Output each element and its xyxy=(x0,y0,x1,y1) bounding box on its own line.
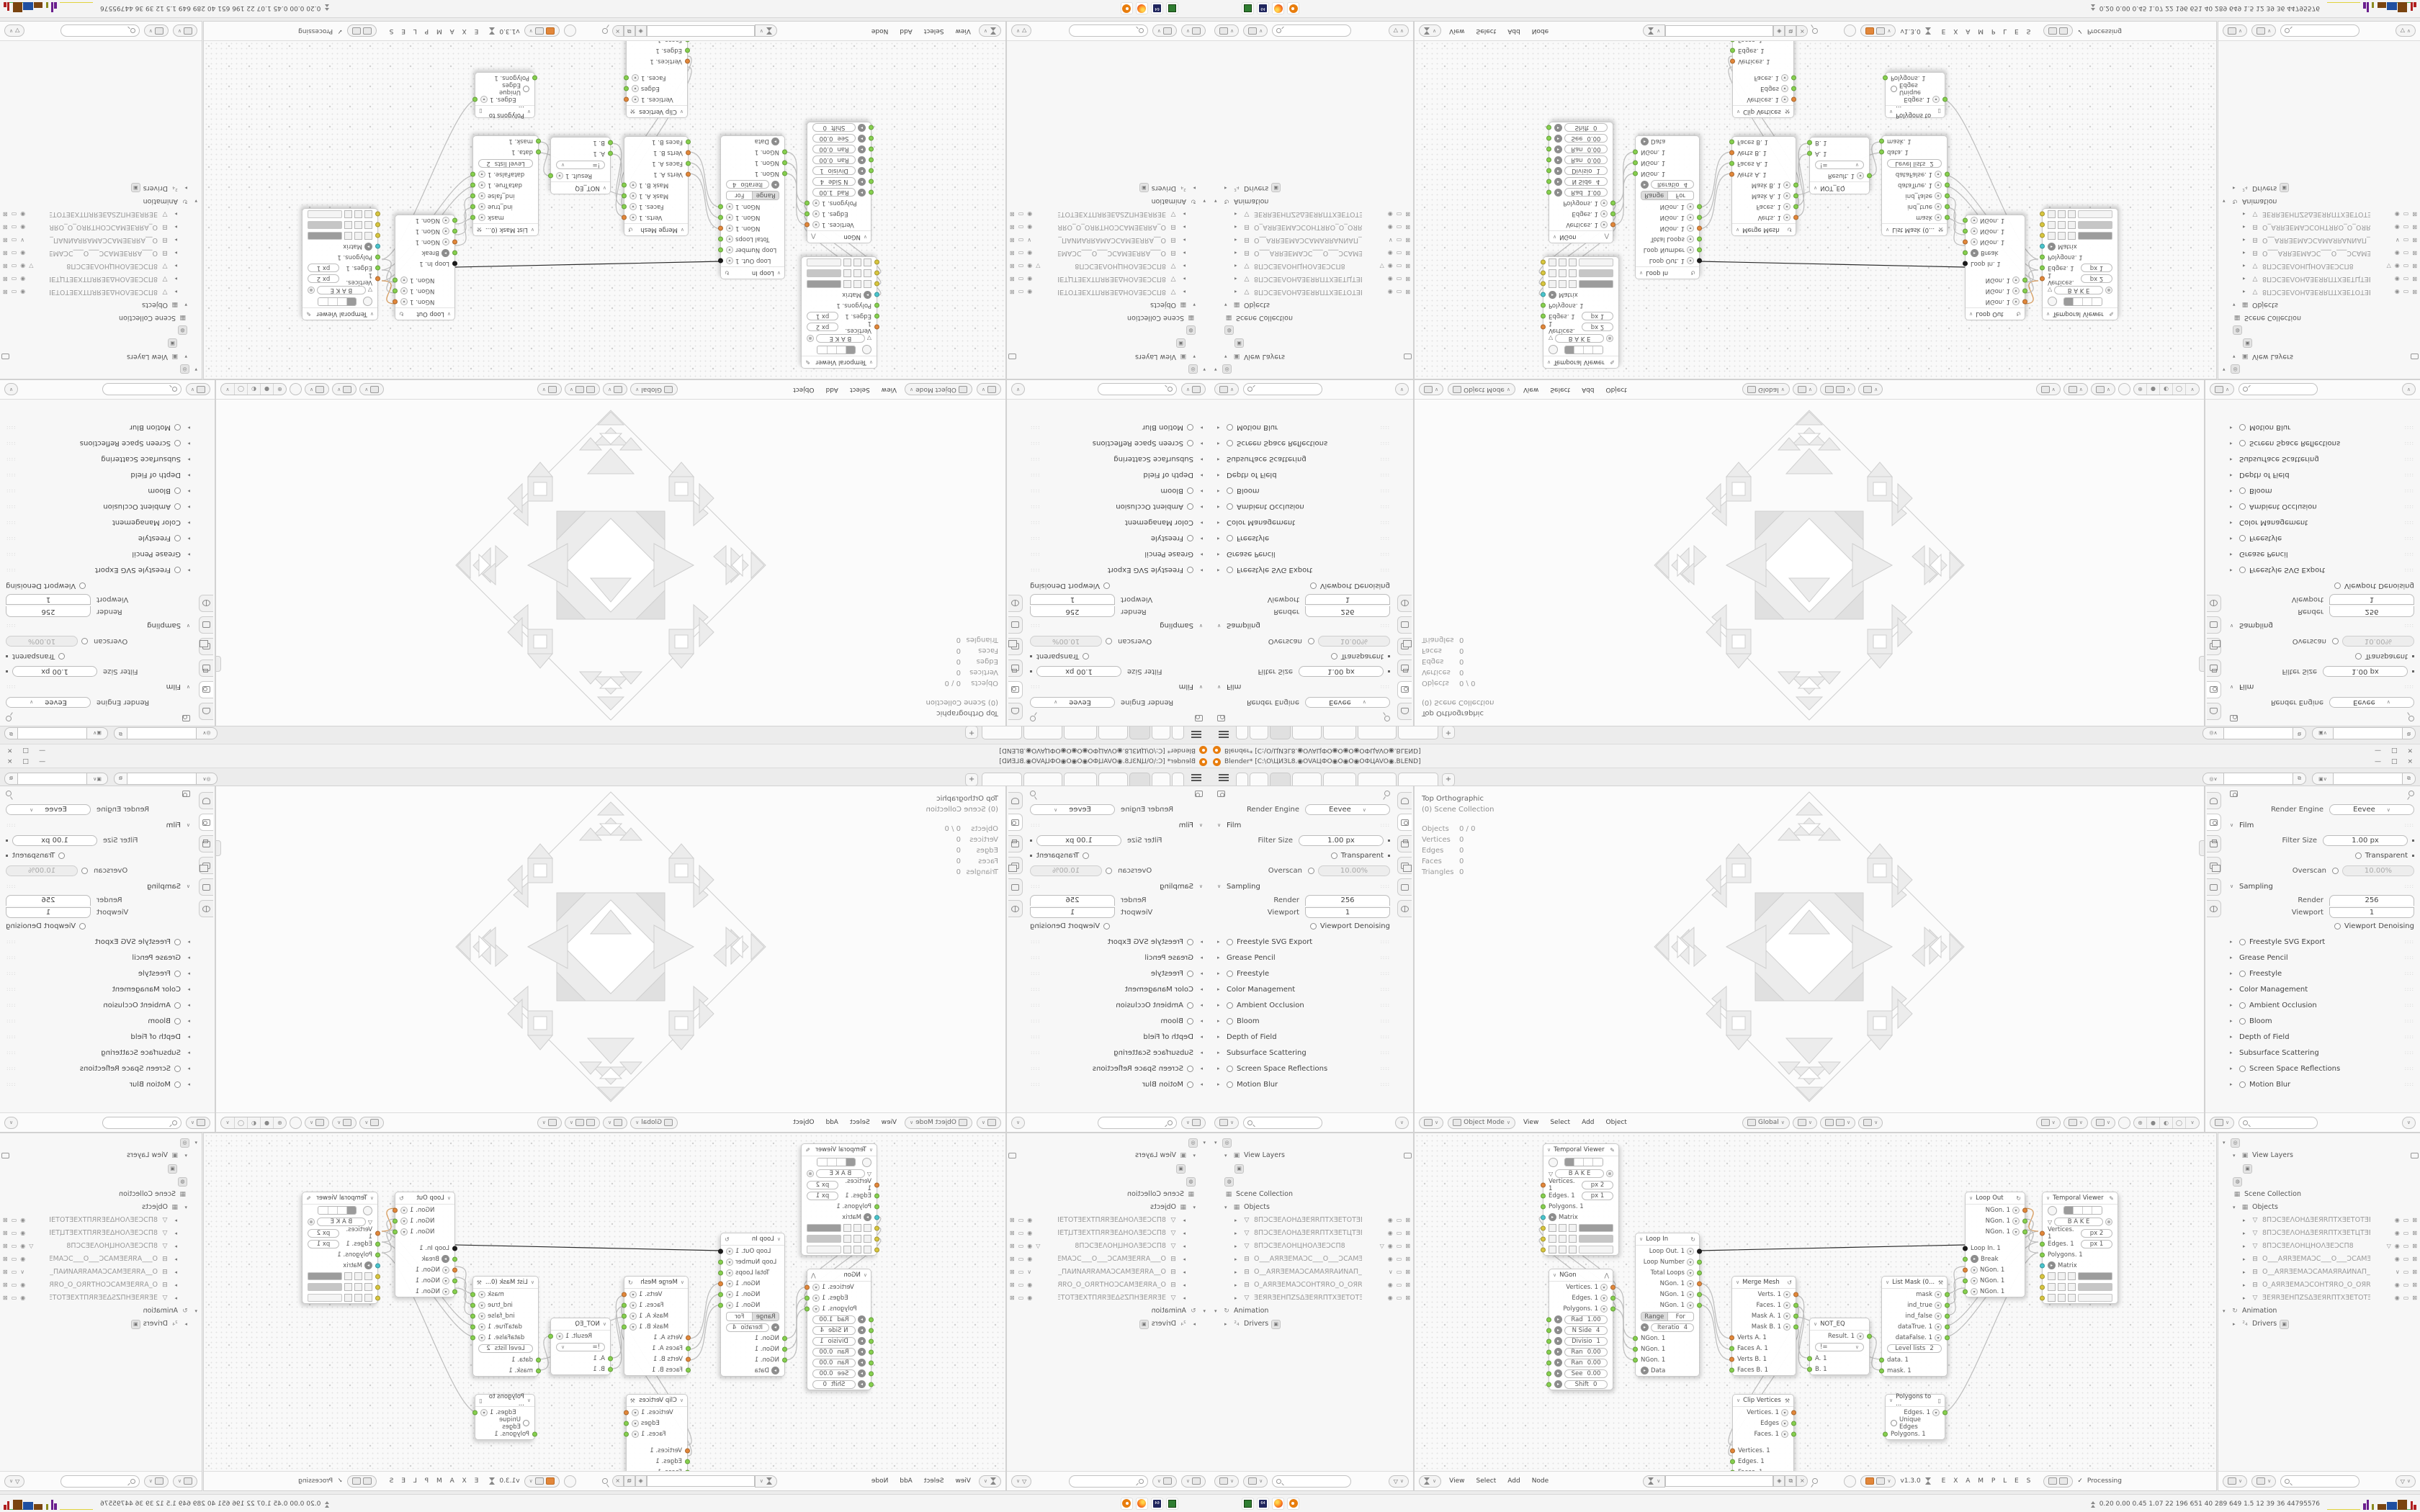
shading-material-icon[interactable]: ◐ xyxy=(247,384,260,396)
menu-object[interactable]: Object xyxy=(789,386,817,393)
modifier-icon[interactable]: ▽ xyxy=(1036,259,1040,272)
node-noteq[interactable]: ∨NOT_EQResult. 1▾!=∨A. 1B. 1 xyxy=(1809,137,1870,194)
input-socket[interactable] xyxy=(1546,1317,1551,1322)
output-socket[interactable] xyxy=(1697,258,1702,264)
node-row[interactable] xyxy=(2043,220,2117,230)
workspace-tab[interactable] xyxy=(1323,773,1356,786)
node-row[interactable]: Total Loops▾ xyxy=(721,1267,784,1278)
node-noteq[interactable]: ∨NOT_EQResult. 1▾!=∨A. 1B. 1 xyxy=(550,137,611,194)
samples-render-field[interactable]: 256 xyxy=(6,895,91,906)
taskbar-app1-icon[interactable] xyxy=(1166,1498,1178,1510)
filter-size-field[interactable]: 1.00 px xyxy=(1036,666,1121,677)
operator-dropdown[interactable]: !=∨ xyxy=(1815,161,1864,169)
show-icon[interactable] xyxy=(2048,1206,2057,1215)
input-socket[interactable] xyxy=(2040,222,2045,228)
bake-options-icon[interactable]: ⊗ xyxy=(2105,1218,2112,1225)
view-layer-selector[interactable]: ▣∨⧉ xyxy=(4,773,108,785)
value-field[interactable]: See0.00 xyxy=(1564,135,1608,143)
input-socket[interactable] xyxy=(1541,1193,1546,1198)
world-item-icon[interactable]: ◍ xyxy=(2233,1177,2242,1187)
input-socket[interactable] xyxy=(1729,1335,1734,1340)
viewport-3d[interactable]: Top Orthographic (0) Scene Collection Ob… xyxy=(216,380,1005,726)
filter-size-field[interactable]: 1.00 px xyxy=(1299,835,1384,846)
tab-scene[interactable] xyxy=(1397,616,1412,634)
input-socket[interactable] xyxy=(1879,1357,1884,1362)
display-options-icons[interactable] xyxy=(817,346,856,354)
node-row[interactable] xyxy=(1543,1233,1618,1244)
scene-copy-icon[interactable]: ⧉ xyxy=(2293,727,2306,739)
input-socket[interactable] xyxy=(1546,168,1551,174)
node-row[interactable]: Faces B. 1 xyxy=(1732,1364,1796,1375)
outliner-object-row[interactable]: ▸⊟O__AЯRƎEMAƆCAMAЯRAИNAП_C∨▭⊠ xyxy=(1,233,197,246)
node-row[interactable]: Vertices. 1▾ xyxy=(1549,220,1613,230)
color-swatch[interactable] xyxy=(2078,232,2112,240)
value-field[interactable]: N Side4 xyxy=(812,178,856,186)
node-row[interactable]: Edges. 1px 1 xyxy=(1543,1190,1618,1201)
processing-check-icon[interactable]: ✓ xyxy=(2077,1477,2083,1485)
workspace-tab[interactable] xyxy=(982,773,1022,786)
gizmo-dropdown[interactable]: ∨ xyxy=(2063,1117,2088,1129)
minimize-button[interactable]: — xyxy=(39,747,45,754)
outliner-object-row[interactable]: ▸▽8ПƆCƎEΛOHЦHOΛƎEƆCП8▽◉▭⊠ xyxy=(2223,259,2419,272)
view-layer-item-icon[interactable]: ▣ xyxy=(1234,339,1244,348)
snap-dropdown[interactable]: ∨ xyxy=(1860,1475,1896,1488)
outliner-row-objects[interactable]: ▾▦Objects xyxy=(1,1201,197,1214)
input-socket[interactable] xyxy=(874,1193,879,1198)
show-icon[interactable] xyxy=(862,1158,871,1167)
section-sampling[interactable]: ∨Sampling:::: xyxy=(1030,618,1203,634)
tab-output[interactable] xyxy=(2207,835,2221,852)
value-field[interactable]: See0.00 xyxy=(1564,1369,1608,1378)
outliner-row-drivers[interactable]: ▸²₄Drivers▣ xyxy=(1,1318,197,1331)
filter-mode-dropdown[interactable]: ∨ xyxy=(2251,25,2276,37)
node-row[interactable]: Unique Edges xyxy=(1886,1418,1945,1428)
input-socket[interactable] xyxy=(1633,1357,1638,1362)
node-row[interactable]: ▸Data xyxy=(1636,136,1699,147)
node-row[interactable]: data. 1 xyxy=(1882,147,1947,158)
node-noteq[interactable]: ∨NOT_EQResult. 1▾!=∨A. 1B. 1 xyxy=(1809,1318,1870,1375)
tab-tool[interactable] xyxy=(1008,792,1023,809)
disable-viewport-icon[interactable]: ▭ xyxy=(1018,1214,1024,1227)
output-socket[interactable] xyxy=(1945,1313,1950,1318)
output-socket[interactable] xyxy=(548,174,553,179)
color-swatch[interactable] xyxy=(807,1235,841,1243)
view-layer-item-icon[interactable]: ▣ xyxy=(2243,339,2252,348)
samples-viewport-field[interactable]: 1 xyxy=(1305,594,1390,605)
workspace-tab[interactable] xyxy=(1358,726,1397,739)
node-tv1[interactable]: ∨Temporal Viewer✎▽B A K E⊗Vertices. 1px … xyxy=(801,256,877,369)
outliner-object-row[interactable]: ▸▽ƎEЯRƎEHПZSΔƎEЯRПTXƎETOTƎE◉▭⊠ xyxy=(1,207,197,220)
shading-options-icon[interactable]: ∨ xyxy=(2186,1117,2199,1129)
display-options-icons[interactable] xyxy=(2063,1206,2102,1215)
output-socket[interactable] xyxy=(1942,1410,1948,1415)
node-row[interactable]: Faces B. 1 xyxy=(624,137,688,148)
snap-dropdown[interactable]: ∨ xyxy=(1860,25,1896,37)
output-socket[interactable] xyxy=(393,289,398,294)
node-row[interactable]: Vertices. 1▾ xyxy=(627,1407,687,1418)
samples-render-field[interactable]: 256 xyxy=(1030,606,1115,617)
color-swatch[interactable] xyxy=(308,1283,342,1291)
orientation-dropdown[interactable]: Global∨ xyxy=(630,384,678,396)
node-row[interactable]: ▾NGon. 1 xyxy=(395,1286,454,1297)
level-lists-field[interactable]: Level lists2 xyxy=(478,159,533,168)
node-row[interactable]: NGon. 1 xyxy=(1636,147,1699,158)
node-ngon[interactable]: ∨NGon⋀Vertices. 1▾Edges. 1▾Polygons. 1▾▸… xyxy=(807,1269,871,1390)
menu-node[interactable]: Node xyxy=(1528,27,1553,35)
render-engine-dropdown[interactable]: Eevee∨ xyxy=(1305,697,1390,708)
menu-add[interactable]: Add xyxy=(1578,1119,1597,1126)
input-socket[interactable] xyxy=(1879,150,1884,155)
outliner-object-row[interactable]: ▸⊟O__AЯRƎEMAƆCAMAЯRAИNAП_C∨▭⊠ xyxy=(1214,233,1412,246)
node-row[interactable]: Edges. 1 xyxy=(627,1456,687,1467)
node-row[interactable] xyxy=(302,296,377,307)
px-field[interactable]: px 2 xyxy=(807,1181,838,1189)
operator-dropdown[interactable]: !=∨ xyxy=(556,161,605,169)
node-row[interactable]: Loop Number▾ xyxy=(721,245,784,256)
bake-button[interactable]: B A K E xyxy=(816,334,865,343)
node-row[interactable]: NGon. 1▾ xyxy=(1966,1215,2025,1226)
node-row[interactable]: Polygons. 1 xyxy=(1886,1428,1945,1439)
node-row[interactable] xyxy=(302,1205,377,1216)
input-socket[interactable] xyxy=(536,150,541,155)
node-row[interactable]: ▸Shift0 xyxy=(807,1379,871,1390)
node-row[interactable]: Edges. 1 xyxy=(1733,1456,1793,1467)
node-row[interactable]: ▸Rad1.00 xyxy=(807,187,871,198)
outliner-object-row[interactable]: ▸▽8ПƆCƎEΛOHЦHOΛƎEƆCП8▽◉▭⊠ xyxy=(1214,1240,1412,1253)
input-socket[interactable] xyxy=(452,240,457,245)
output-socket[interactable] xyxy=(470,172,475,177)
node-header[interactable]: ∨Temporal Viewer✎ xyxy=(302,307,377,320)
samples-render-field[interactable]: 256 xyxy=(1305,606,1390,617)
input-socket[interactable] xyxy=(452,1289,457,1294)
value-field[interactable]: Shift0 xyxy=(1564,124,1608,132)
node-row[interactable]: Loop Out. 1▾ xyxy=(721,1246,784,1256)
node-row[interactable]: ▸Divisio1 xyxy=(807,166,871,176)
output-socket[interactable] xyxy=(1791,86,1796,91)
output-socket[interactable] xyxy=(470,1324,475,1329)
disable-render-icon[interactable]: ⊠ xyxy=(1405,285,1410,298)
outliner-row-animation[interactable]: ▾↻Animation xyxy=(1,194,197,207)
input-socket[interactable] xyxy=(686,1346,691,1351)
node-row[interactable]: ▸Matrix xyxy=(1543,1212,1618,1223)
input-socket[interactable] xyxy=(2040,1241,2045,1246)
properties-options-dropdown[interactable]: ∨ xyxy=(2402,384,2416,396)
node-row[interactable]: !=∨ xyxy=(551,159,610,171)
overscan-checkbox[interactable] xyxy=(1308,638,1314,644)
input-socket[interactable] xyxy=(2040,1230,2045,1236)
output-socket[interactable] xyxy=(718,204,723,210)
output-socket[interactable] xyxy=(470,204,475,210)
outliner-object-row[interactable]: ▸⊟O__AЯRƎEMAƆCAMAЯRAИNAП_C∨▭⊠ xyxy=(1008,1266,1206,1279)
pin-icon[interactable] xyxy=(601,1477,609,1485)
node-merge[interactable]: ∨Merge Mesh↺Verts. 1▾Faces. 1▾Mask A. 1▾… xyxy=(624,136,689,236)
node-row[interactable]: Result. 1▾ xyxy=(1810,171,1869,181)
outliner-row-view-layers[interactable]: ▾▣View Layers xyxy=(2223,350,2419,363)
output-socket[interactable] xyxy=(718,1281,723,1286)
section-collapsed[interactable]: ▸Freestyle SVG Export:::: xyxy=(1030,562,1203,578)
output-socket[interactable] xyxy=(624,1421,629,1426)
workspace-tab[interactable] xyxy=(1250,726,1268,739)
proportional-edit-dropdown[interactable]: ∨ xyxy=(1858,1117,1883,1129)
menu-object[interactable]: Object xyxy=(789,1119,817,1126)
node-editor[interactable]: ∨Temporal Viewer✎▽B A K E⊗Vertices. 1px … xyxy=(204,22,1005,379)
node-row[interactable]: Vertices. 1px 2 xyxy=(1543,322,1618,333)
mode-dropdown[interactable]: Object Mode∨ xyxy=(1448,1117,1515,1129)
unique-edges-checkbox[interactable] xyxy=(523,1420,529,1426)
node-row[interactable]: ▸Matrix xyxy=(1543,289,1618,300)
input-socket[interactable] xyxy=(1546,1349,1551,1354)
node-row[interactable]: NGon. 1▾ xyxy=(1636,223,1699,234)
node-row[interactable]: mask. 1 xyxy=(1882,1365,1947,1376)
value-field[interactable]: N Side4 xyxy=(812,1326,856,1335)
node-row[interactable] xyxy=(1543,1156,1618,1168)
main-menu-icon[interactable] xyxy=(1188,771,1204,784)
node-row[interactable]: Total Loops▾ xyxy=(1636,234,1699,245)
shading-options-icon[interactable]: ∨ xyxy=(221,384,234,396)
bake-button[interactable]: B A K E xyxy=(2054,286,2103,294)
node-loopout[interactable]: ∨Loop Out↻NGon. 1▾NGon. 1▾NGon. 1▾Loop I… xyxy=(395,1192,455,1297)
input-socket[interactable] xyxy=(375,244,380,249)
node-listmask[interactable]: ∨List Mask (0...⚒mask▾ind_true▾ind_false… xyxy=(472,1276,539,1377)
snap-magnet-dropdown[interactable]: ∨ xyxy=(1820,384,1855,396)
px-field[interactable]: px 1 xyxy=(2081,1240,2112,1248)
node-row[interactable]: Verts. 1▾ xyxy=(624,212,688,223)
render-engine-dropdown[interactable]: Eevee∨ xyxy=(1305,804,1390,815)
view-layer-selector[interactable]: ▣∨⧉ xyxy=(2312,727,2416,739)
shading-solid-icon[interactable]: ● xyxy=(2147,384,2160,396)
node-row[interactable]: ▾NGon. 1 xyxy=(1966,1264,2025,1275)
workspace-tab[interactable] xyxy=(982,726,1022,739)
node-row[interactable]: mask▾ xyxy=(473,1289,538,1300)
snap-target-dropdown[interactable]: ∨ xyxy=(1793,384,1817,396)
tab-world[interactable] xyxy=(199,595,213,612)
workspace-tab[interactable] xyxy=(1023,726,1062,739)
node-row[interactable] xyxy=(802,1244,877,1255)
outliner-object-row[interactable]: ▸▽8ПƆCƎEΛOHΔƎEЯRПTXƎETЦTƎEX◉▭⊠ xyxy=(1008,1227,1206,1240)
shading-material-icon[interactable]: ◐ xyxy=(2160,1117,2173,1129)
output-socket[interactable] xyxy=(1697,1248,1702,1254)
color-swatch[interactable] xyxy=(807,1246,841,1254)
output-socket[interactable] xyxy=(1945,1302,1950,1308)
node-row[interactable] xyxy=(302,209,377,220)
input-socket[interactable] xyxy=(1730,41,1735,42)
output-socket[interactable] xyxy=(393,1207,398,1212)
bake-button[interactable]: B A K E xyxy=(1555,334,1604,343)
workspace-tab-active[interactable] xyxy=(1129,726,1150,739)
node-row[interactable]: Verts. 1▾ xyxy=(1732,212,1796,223)
node-tv2[interactable]: ∨Temporal Viewer✎▽B A K E⊗Vertices. 1px … xyxy=(302,208,378,320)
menu-select[interactable]: Select xyxy=(1472,27,1500,35)
tab-view-layer[interactable] xyxy=(1397,638,1412,655)
node-row[interactable] xyxy=(2043,1271,2117,1282)
node-row[interactable]: NGon. 1 xyxy=(721,1354,784,1365)
input-socket[interactable] xyxy=(1541,282,1546,287)
render-engine-dropdown[interactable]: Eevee∨ xyxy=(6,804,91,815)
level-lists-field[interactable]: Level lists2 xyxy=(1887,1344,1942,1353)
node-row[interactable]: ▸Data xyxy=(721,136,784,147)
output-socket[interactable] xyxy=(1697,204,1702,210)
input-socket[interactable] xyxy=(2040,266,2045,271)
node-row[interactable] xyxy=(2043,230,2117,241)
input-socket[interactable] xyxy=(1730,59,1735,64)
color-swatch[interactable] xyxy=(2078,221,2112,229)
node-row[interactable]: Vertices. 1px 2 xyxy=(802,322,877,333)
input-socket[interactable] xyxy=(869,147,874,152)
node-row[interactable]: ▸Data xyxy=(1636,1365,1699,1376)
toggle-icon[interactable]: ▸ xyxy=(1549,291,1556,299)
input-socket[interactable] xyxy=(1963,1256,1968,1261)
overscan-checkbox[interactable] xyxy=(81,638,88,644)
node-row[interactable]: ▸Shift0 xyxy=(807,122,871,133)
filter-dropdown[interactable]: ▽∨ xyxy=(2396,1475,2416,1488)
node-row[interactable]: dataTrue. 1▾ xyxy=(1882,180,1947,191)
input-socket[interactable] xyxy=(686,140,691,145)
workspace-tab[interactable] xyxy=(1172,773,1184,786)
tab-world[interactable] xyxy=(2207,900,2221,917)
menu-select[interactable]: Select xyxy=(1472,1477,1500,1485)
input-socket[interactable] xyxy=(375,233,380,238)
node-row[interactable]: Edges. 1 xyxy=(627,45,687,56)
shading-solid-icon[interactable]: ● xyxy=(260,1117,273,1129)
output-socket[interactable] xyxy=(1945,194,1950,199)
pin-icon[interactable] xyxy=(4,714,12,722)
node-tv1[interactable]: ∨Temporal Viewer✎▽B A K E⊗Vertices. 1px … xyxy=(801,1143,877,1256)
mode-segmented-control[interactable]: RangeFor Each xyxy=(1641,192,1694,201)
view-layer-filter-icon[interactable]: ◎ xyxy=(2231,365,2240,374)
mode-segmented-control[interactable]: RangeFor Each xyxy=(726,192,779,201)
output-socket[interactable] xyxy=(2022,278,2027,283)
visibility-dropdown[interactable]: ∨ xyxy=(359,1117,384,1129)
maximize-button[interactable]: □ xyxy=(23,747,30,754)
node-header[interactable]: ∨Merge Mesh↺ xyxy=(624,223,688,235)
view-layer-filter-icon[interactable]: ◎ xyxy=(1222,365,1232,374)
outliner-search-input[interactable] xyxy=(1069,25,1148,37)
outliner-object-row[interactable]: ▸⊟O_AЯRƎEMAƆCOHTЯRO_O_OЯRTH◉▭⊠ xyxy=(1214,1279,1412,1292)
color-swatch[interactable] xyxy=(1579,1246,1613,1254)
output-socket[interactable] xyxy=(470,1313,475,1318)
node-noteq[interactable]: ∨NOT_EQResult. 1▾!=∨A. 1B. 1 xyxy=(550,1318,611,1375)
menu-view[interactable]: View xyxy=(878,1119,900,1126)
node-row[interactable]: ▸Matrix xyxy=(802,289,877,300)
shading-rendered-icon[interactable]: ◯ xyxy=(2173,384,2186,396)
input-socket[interactable] xyxy=(782,161,787,166)
menu-view[interactable]: View xyxy=(1446,27,1468,35)
node-row[interactable]: Polygons. 1 xyxy=(2043,1249,2117,1260)
node-header[interactable]: ∨Temporal Viewer✎ xyxy=(2043,307,2117,320)
input-socket[interactable] xyxy=(1541,1204,1546,1209)
toggle-icon[interactable]: ▸ xyxy=(771,138,779,145)
outliner-row-animation[interactable]: ▾↻Animation xyxy=(2223,194,2419,207)
input-socket[interactable] xyxy=(2040,276,2045,282)
outliner-row-scene-collection[interactable]: ▦Scene Collection xyxy=(1,1188,197,1201)
output-socket[interactable] xyxy=(1697,1259,1702,1264)
outliner-object-row[interactable]: ▸▽ƎEЯRƎEHПZSΔƎEЯRПTXƎETOTƎE◉▭⊠ xyxy=(1,1292,197,1305)
tab-view-layer[interactable] xyxy=(199,857,213,874)
scene-selector[interactable]: ◎∨⧉ xyxy=(2202,773,2306,785)
px-field[interactable]: px 2 xyxy=(1582,323,1613,332)
input-socket[interactable] xyxy=(869,1328,874,1333)
node-row[interactable]: dataFalse. 1▾ xyxy=(473,1332,538,1343)
input-socket[interactable] xyxy=(452,251,457,256)
output-socket[interactable] xyxy=(1697,1292,1702,1297)
outliner-object-row[interactable]: ▸▽8ПƆCƎEΛOHЦHOΛƎEƆCП8▽◉▭⊠ xyxy=(2223,1240,2419,1253)
node-row[interactable] xyxy=(2043,1292,2117,1303)
node-row[interactable]: dataTrue. 1▾ xyxy=(1882,1321,1947,1332)
menu-view[interactable]: View xyxy=(1520,1119,1542,1126)
display-mode-dropdown[interactable]: ∨ xyxy=(1214,1475,1239,1488)
node-row[interactable]: ▸Rad1.00 xyxy=(807,1314,871,1325)
outliner-object-row[interactable]: ▸⊟O___AЯRƎEMAƆC___O___ƆCAMƎ◉▭⊠ xyxy=(1214,1253,1412,1266)
workspace-tab[interactable] xyxy=(1398,726,1438,739)
node-row[interactable]: Level lists2 xyxy=(473,158,538,169)
display-mode-dropdown[interactable]: ∨ xyxy=(1181,1475,1206,1488)
editor-type-dropdown[interactable]: ∨ xyxy=(1181,1117,1206,1129)
input-socket[interactable] xyxy=(874,1247,879,1252)
overlays-dropdown[interactable]: ∨ xyxy=(305,1117,329,1129)
node-row[interactable] xyxy=(302,220,377,230)
world-item-icon[interactable]: ◍ xyxy=(178,326,187,336)
node-row[interactable]: ▾NGon. 1 xyxy=(1966,237,2025,248)
node-row[interactable]: ind_false▾ xyxy=(473,1310,538,1321)
node-row[interactable]: mask. 1 xyxy=(473,1365,538,1376)
outliner-object-row[interactable]: ▸⊟O___AЯRƎEMAƆC___O___ƆCAMƎ◉▭⊠ xyxy=(1008,1253,1206,1266)
input-socket[interactable] xyxy=(452,1278,457,1283)
overscan-checkbox[interactable] xyxy=(2332,638,2339,644)
input-socket[interactable] xyxy=(536,139,541,144)
workspace-tab[interactable] xyxy=(1064,726,1097,739)
node-row[interactable]: ▾NGon. 1 xyxy=(395,215,454,226)
tab-render[interactable] xyxy=(1397,814,1412,831)
output-socket[interactable] xyxy=(718,226,723,231)
overscan-field[interactable]: 10.00% xyxy=(6,865,78,876)
node-editor[interactable]: ∨Temporal Viewer✎▽B A K E⊗Vertices. 1px … xyxy=(1415,22,2216,379)
editor-type-dropdown[interactable]: ∨ xyxy=(979,25,1001,37)
node-header[interactable]: ∨Temporal Viewer✎ xyxy=(802,1144,877,1156)
node-row[interactable]: Edges. 1px 1 xyxy=(302,1238,377,1249)
node-row[interactable]: data. 1 xyxy=(473,147,538,158)
sidebar-toggle[interactable] xyxy=(216,840,221,856)
scene-selector[interactable]: ◎∨⧉ xyxy=(2202,727,2306,739)
output-socket[interactable] xyxy=(624,1410,629,1415)
outliner-object-row[interactable]: ▸▽8ПƆCƎEΛOHЦHOΛƎEƆCП8▽◉▭⊠ xyxy=(1008,259,1206,272)
editor-type-dropdown[interactable]: ∨ xyxy=(186,384,210,396)
output-socket[interactable] xyxy=(2022,289,2027,294)
input-socket[interactable] xyxy=(869,1371,874,1376)
display-options-icons[interactable] xyxy=(817,1158,856,1166)
workspace-tab[interactable] xyxy=(1292,726,1322,739)
outliner-object-row[interactable]: ▸⊟O__AЯRƎEMAƆCAMAЯRAИNAП_C∨▭⊠ xyxy=(2223,233,2419,246)
node-tv2[interactable]: ∨Temporal Viewer✎▽B A K E⊗Vertices. 1px … xyxy=(302,1192,378,1304)
node-row[interactable]: Mask A. 1▾ xyxy=(624,191,688,202)
value-field[interactable]: Ran0.00 xyxy=(812,1359,856,1367)
taskbar-app1-icon[interactable] xyxy=(1242,1498,1254,1510)
outliner-object-row[interactable]: ▸⊟O_AЯRƎEMAƆCOHTЯRO_O_OЯRTH◉▭⊠ xyxy=(1008,220,1206,233)
px-field[interactable]: px 1 xyxy=(1582,312,1613,321)
world-item-icon[interactable]: ◍ xyxy=(1186,1177,1196,1187)
node-row[interactable]: ▸Ran0.00 xyxy=(807,1346,871,1357)
output-socket[interactable] xyxy=(1945,215,1950,220)
outliner-object-row[interactable]: ▸⊟O___AЯRƎEMAƆC___O___ƆCAMƎ◉▭⊠ xyxy=(1008,246,1206,259)
node-row[interactable]: Faces A. 1 xyxy=(1732,158,1796,169)
input-socket[interactable] xyxy=(1546,1360,1551,1365)
node-row[interactable]: Verts. 1▾ xyxy=(624,1289,688,1300)
input-socket[interactable] xyxy=(1541,314,1546,319)
node-row[interactable]: Vertices. 1▾ xyxy=(1733,1407,1793,1418)
samples-viewport-field[interactable]: 1 xyxy=(2329,907,2414,918)
tab-tool[interactable] xyxy=(2207,792,2221,809)
menu-node[interactable]: Node xyxy=(868,27,892,35)
add-workspace-button[interactable]: + xyxy=(1442,773,1455,786)
